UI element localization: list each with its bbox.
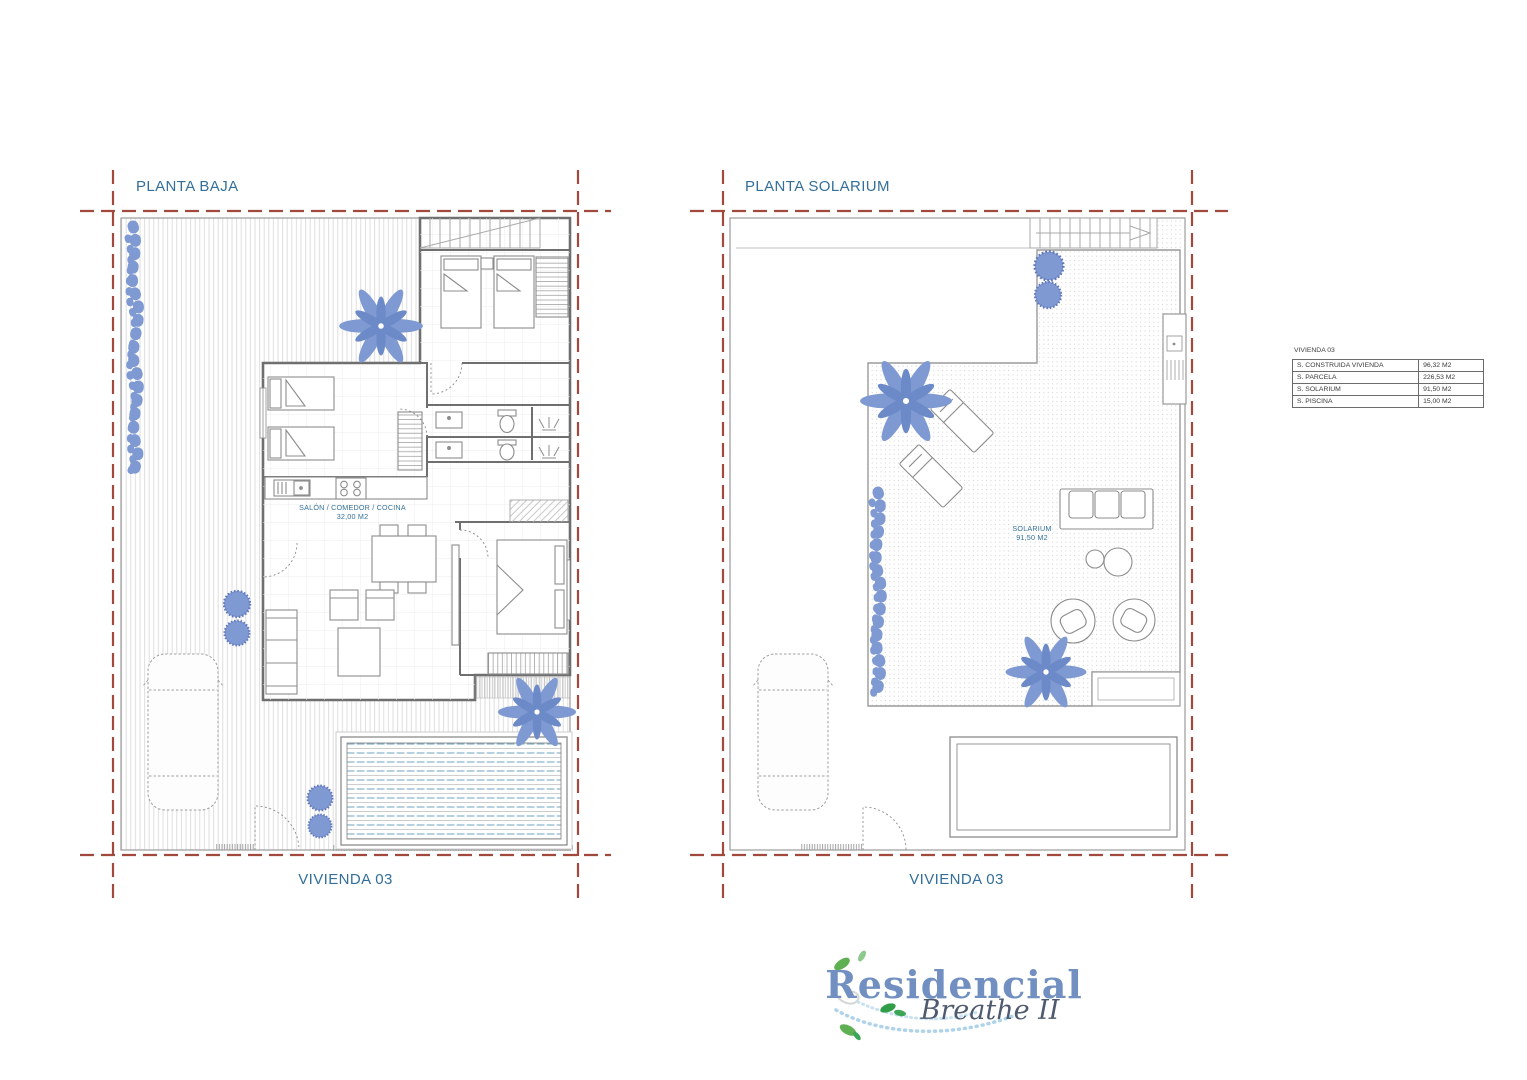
bush-icon (225, 621, 250, 646)
bush-icon (1035, 252, 1064, 281)
plan-title-baja: PLANTA BAJA (136, 178, 239, 195)
brand-logo: Residencial Breathe II (818, 946, 1128, 1071)
plan-footer-baja: VIVIENDA 03 (113, 871, 578, 888)
plan-title-solarium: PLANTA SOLARIUM (745, 178, 890, 195)
floorplan-sheet: PLANTA BAJA PLANTA SOLARIUM VIVIENDA 03 … (0, 0, 1527, 1080)
pool (950, 737, 1177, 837)
plan-footer-solarium: VIVIENDA 03 (723, 871, 1190, 888)
pool (336, 732, 572, 849)
room-label-salon: SALÓN / COMEDOR / COCINA 32,00 M2 (280, 503, 425, 521)
room-label-solarium: SOLARIUM 91,50 M2 (972, 524, 1092, 542)
row-value: 226,53 M2 (1419, 372, 1484, 384)
table-row: S. PISCINA 15,00 M2 (1293, 396, 1484, 408)
walkway (215, 844, 255, 850)
bathroom-sink (436, 412, 462, 428)
car-icon (142, 654, 224, 810)
hedge-row (128, 226, 139, 478)
bush-icon (308, 786, 333, 811)
row-value: 96,32 M2 (1419, 360, 1484, 372)
plan-drawing (0, 0, 1527, 1080)
deck-strip (1157, 218, 1185, 248)
area-summary: VIVIENDA 03 S. CONSTRUIDA VIVIENDA 96,32… (1292, 347, 1484, 408)
summary-table: S. CONSTRUIDA VIVIENDA 96,32 M2 S. PARCE… (1292, 359, 1484, 408)
nightstand (481, 258, 493, 269)
bush-icon (1035, 282, 1061, 308)
chair (408, 582, 426, 593)
wardrobe (536, 257, 568, 317)
bush-icon (224, 591, 250, 617)
dining-table (372, 536, 436, 582)
room-name: SALÓN / COMEDOR / COCINA (280, 503, 425, 512)
planta-baja-plan (80, 170, 611, 905)
room-area: 32,00 M2 (280, 512, 425, 521)
armchair (330, 590, 358, 620)
bush-icon (309, 815, 332, 838)
chair (380, 525, 398, 536)
room-name: SOLARIUM (972, 524, 1092, 533)
row-label: S. SOLARIUM (1293, 384, 1419, 396)
summary-title: VIVIENDA 03 (1294, 347, 1484, 354)
table-row: S. CONSTRUIDA VIVIENDA 96,32 M2 (1293, 360, 1484, 372)
sofa (266, 610, 297, 694)
entry-porch (510, 500, 568, 522)
room-area: 91,50 M2 (972, 533, 1092, 542)
outdoor-sink-unit (1163, 314, 1186, 404)
walkway (800, 844, 862, 850)
row-label: S. CONSTRUIDA VIVIENDA (1293, 360, 1419, 372)
planter-notch (1092, 672, 1180, 706)
armchair (366, 590, 394, 620)
car-icon (752, 654, 834, 810)
wardrobe (488, 653, 568, 674)
tv-unit (452, 545, 459, 645)
coffee-table (338, 628, 380, 676)
stove (336, 478, 366, 499)
row-value: 91,50 M2 (1419, 384, 1484, 396)
table-row: S. SOLARIUM 91,50 M2 (1293, 384, 1484, 396)
row-label: S. PISCINA (1293, 396, 1419, 408)
wardrobe (398, 412, 422, 470)
logo-tagline: Breathe II (818, 995, 1128, 1026)
planta-solarium-plan (690, 170, 1228, 905)
stairs (1030, 218, 1157, 248)
chair (408, 525, 426, 536)
outdoor-sofa (1060, 489, 1153, 529)
row-value: 15,00 M2 (1419, 396, 1484, 408)
bathroom-sink (436, 442, 462, 458)
table-row: S. PARCELA 226,53 M2 (1293, 372, 1484, 384)
row-label: S. PARCELA (1293, 372, 1419, 384)
